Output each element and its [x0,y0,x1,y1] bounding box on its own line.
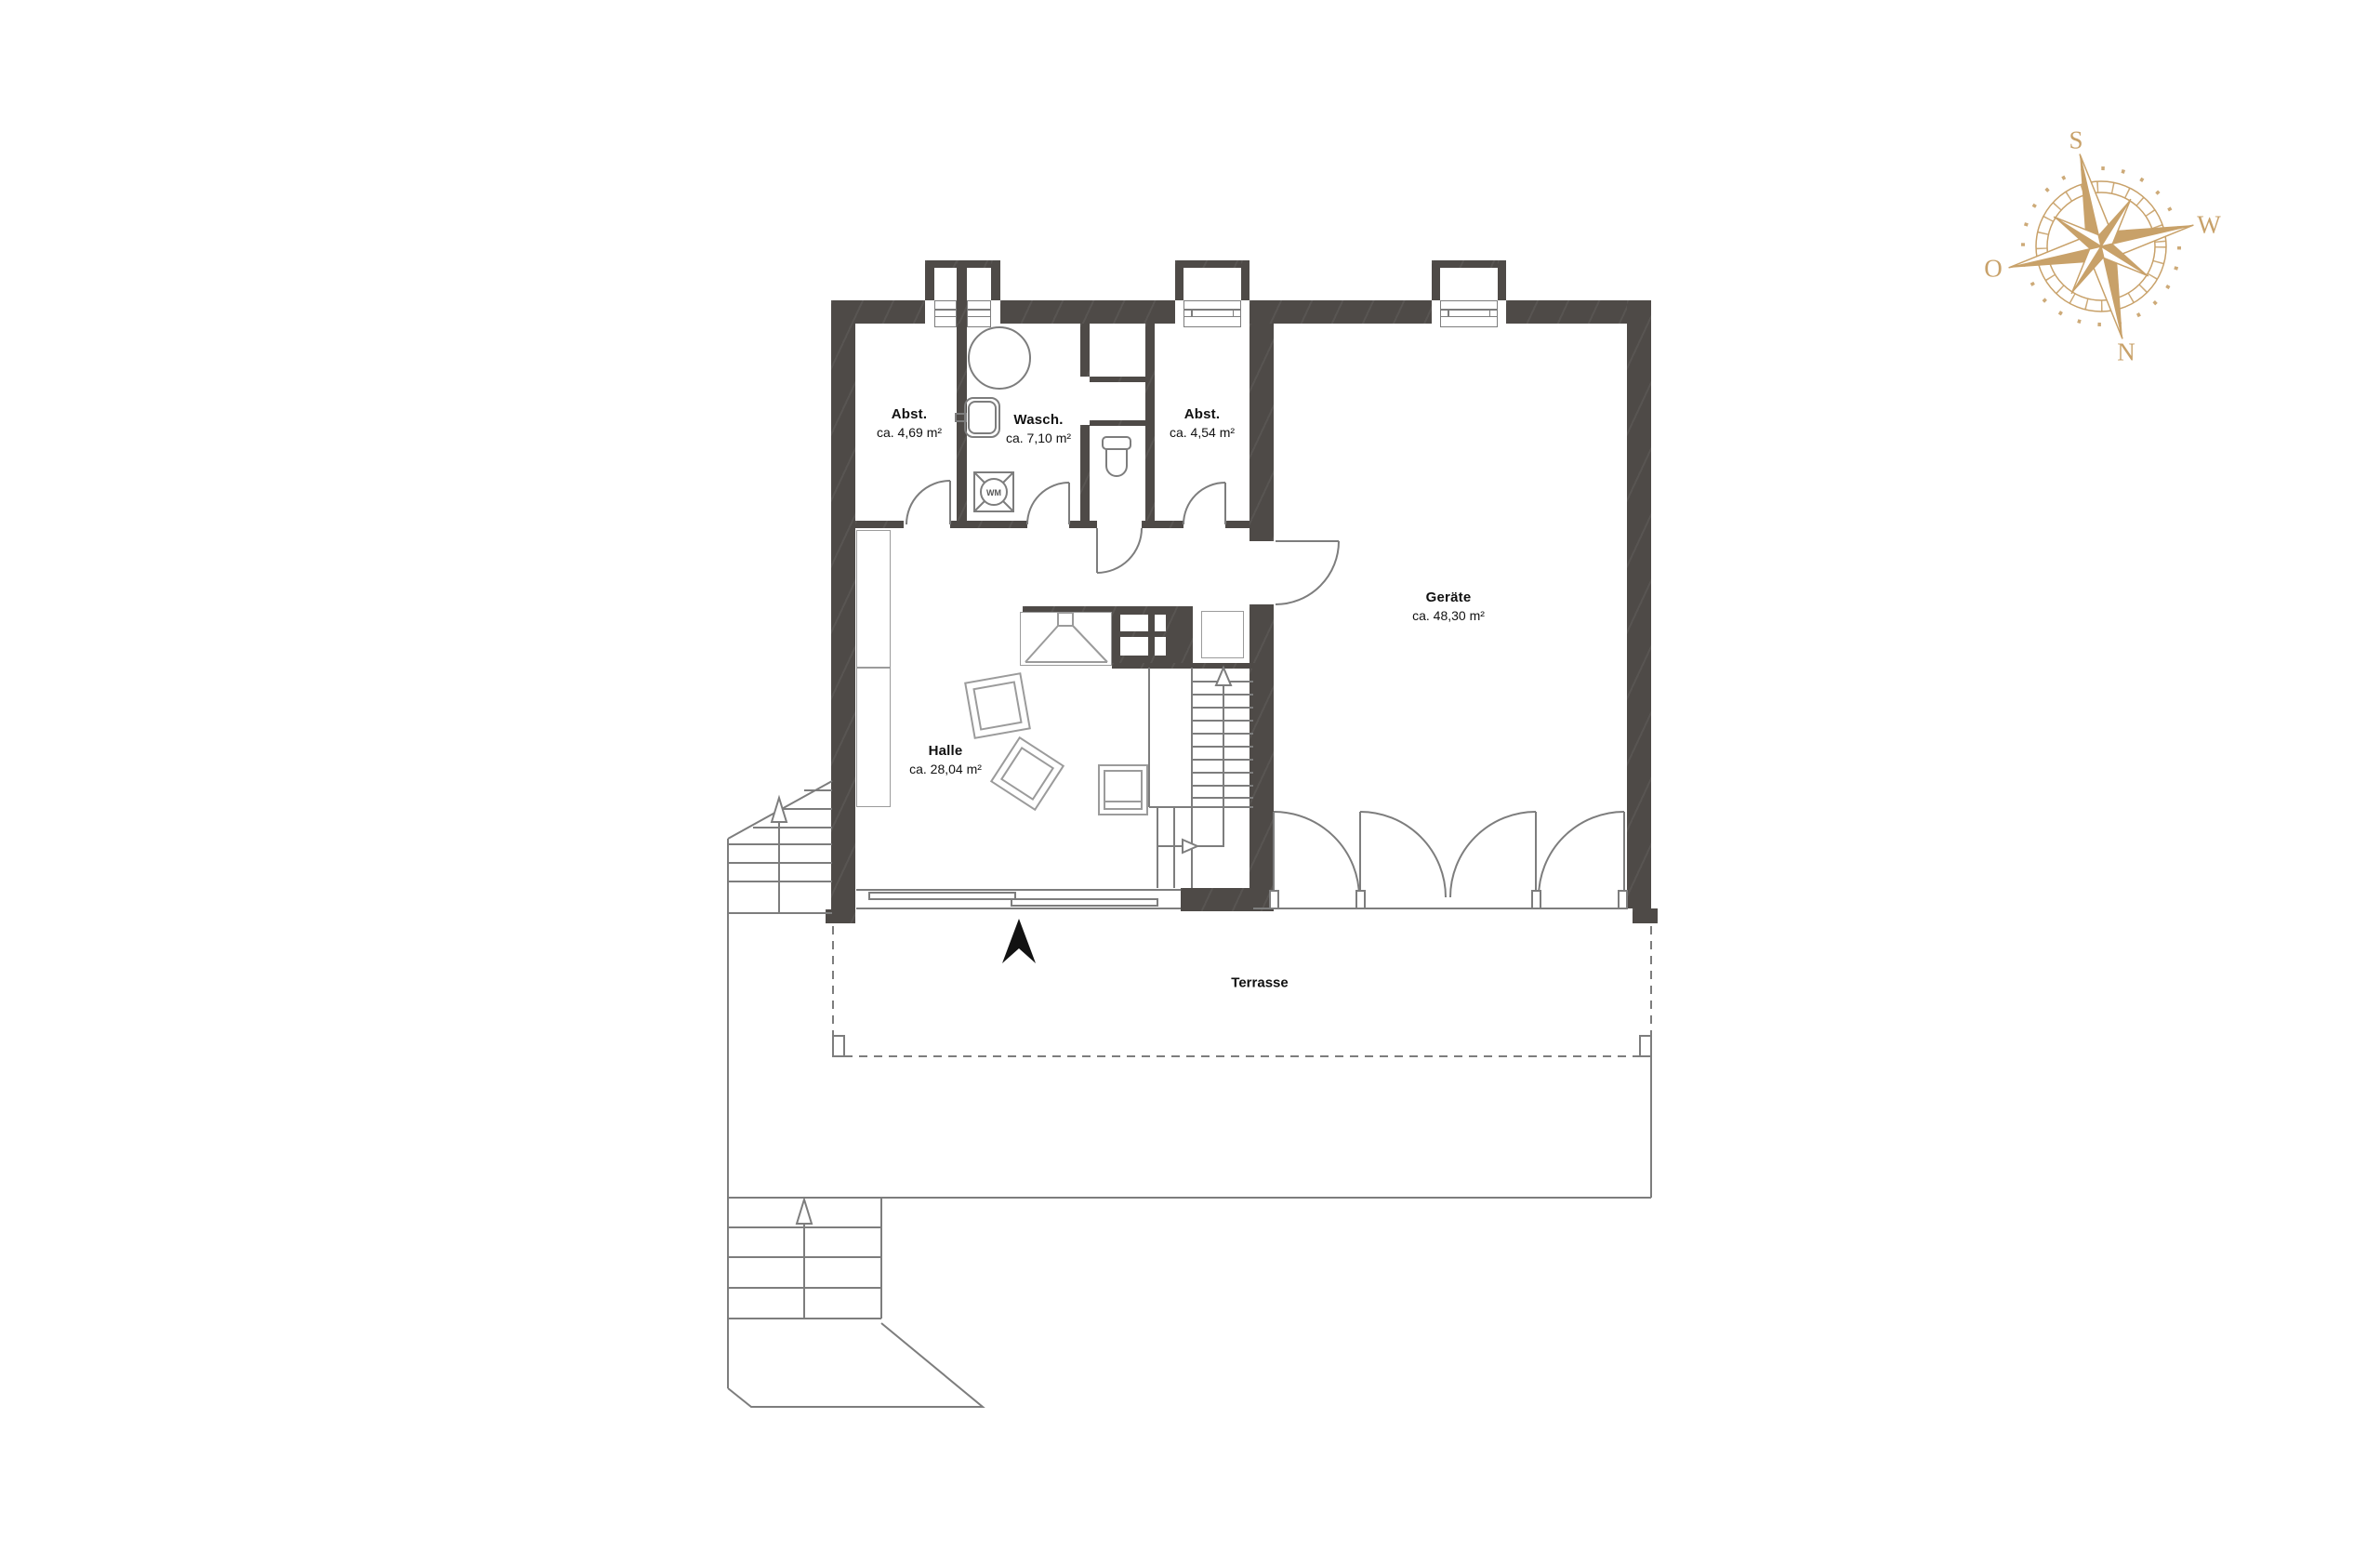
lower-terrace-outline [728,839,1651,1388]
exterior-stair-upper [728,781,832,913]
door-wasch [1027,483,1069,524]
compass-letter-north: N [2117,338,2135,367]
room-label-halle: Halle ca. 28,04 m² [909,742,982,777]
room-label-wasch: Wasch. ca. 7,10 m² [1006,411,1071,446]
room-area: ca. 4,69 m² [877,424,942,441]
armchair-3 [1099,765,1147,815]
room-label-abst-right: Abst. ca. 4,54 m² [1170,405,1235,441]
garden-path-outline [728,1323,983,1407]
terrace-dashed-boundary [833,926,1651,1056]
stair-walk-line [1157,685,1223,846]
staircase-interior [1149,668,1253,888]
compass-letter-south: S [2069,126,2082,155]
door-wc [1097,528,1142,573]
floor-plan: Abst. ca. 4,69 m² Wasch. ca. 7,10 m² Abs… [0,0,2380,1564]
compass-rose [1988,133,2215,361]
north-arrow-icon [1002,919,1036,963]
terrace-post-right [1640,1036,1651,1056]
terrace-label: Terrasse [1231,975,1288,991]
toilet-icon [1103,437,1130,476]
room-area: ca. 4,54 m² [1170,424,1235,441]
boiler-icon [969,327,1030,389]
room-label-geraete: Geräte ca. 48,30 m² [1412,589,1485,624]
armchair-2 [991,737,1063,809]
room-name: Abst. [877,405,942,424]
room-name: Abst. [1170,405,1235,424]
room-area: ca. 28,04 m² [909,761,982,777]
fireplace-hood-icon [1025,613,1107,662]
room-label-abst-left: Abst. ca. 4,69 m² [877,405,942,441]
terrace-post-left [833,1036,844,1056]
door-abst-right [1183,483,1225,524]
compass-letter-west: W [2197,211,2220,240]
room-area: ca. 48,30 m² [1412,607,1485,624]
door-abst-left [906,481,950,524]
room-name: Geräte [1412,589,1485,607]
sliding-door-hall [856,890,1181,908]
plan-linework [0,0,2380,1564]
sink-icon [956,398,999,437]
room-name: Wasch. [1006,411,1071,430]
room-name: Halle [909,742,982,761]
door-geraete [1276,541,1339,604]
stair-up-arrowhead-icon [1216,668,1231,685]
armchair-1 [965,673,1030,738]
washing-machine-label: WM [986,488,1001,497]
folding-doors-geraete [1253,812,1627,908]
room-area: ca. 7,10 m² [1006,430,1071,446]
compass-letter-east: O [1984,255,2003,284]
stair-up-arrowhead-icon [797,1200,812,1224]
stair-direction-arrowhead-icon [1183,840,1197,853]
exterior-stair-lower [728,1198,983,1407]
